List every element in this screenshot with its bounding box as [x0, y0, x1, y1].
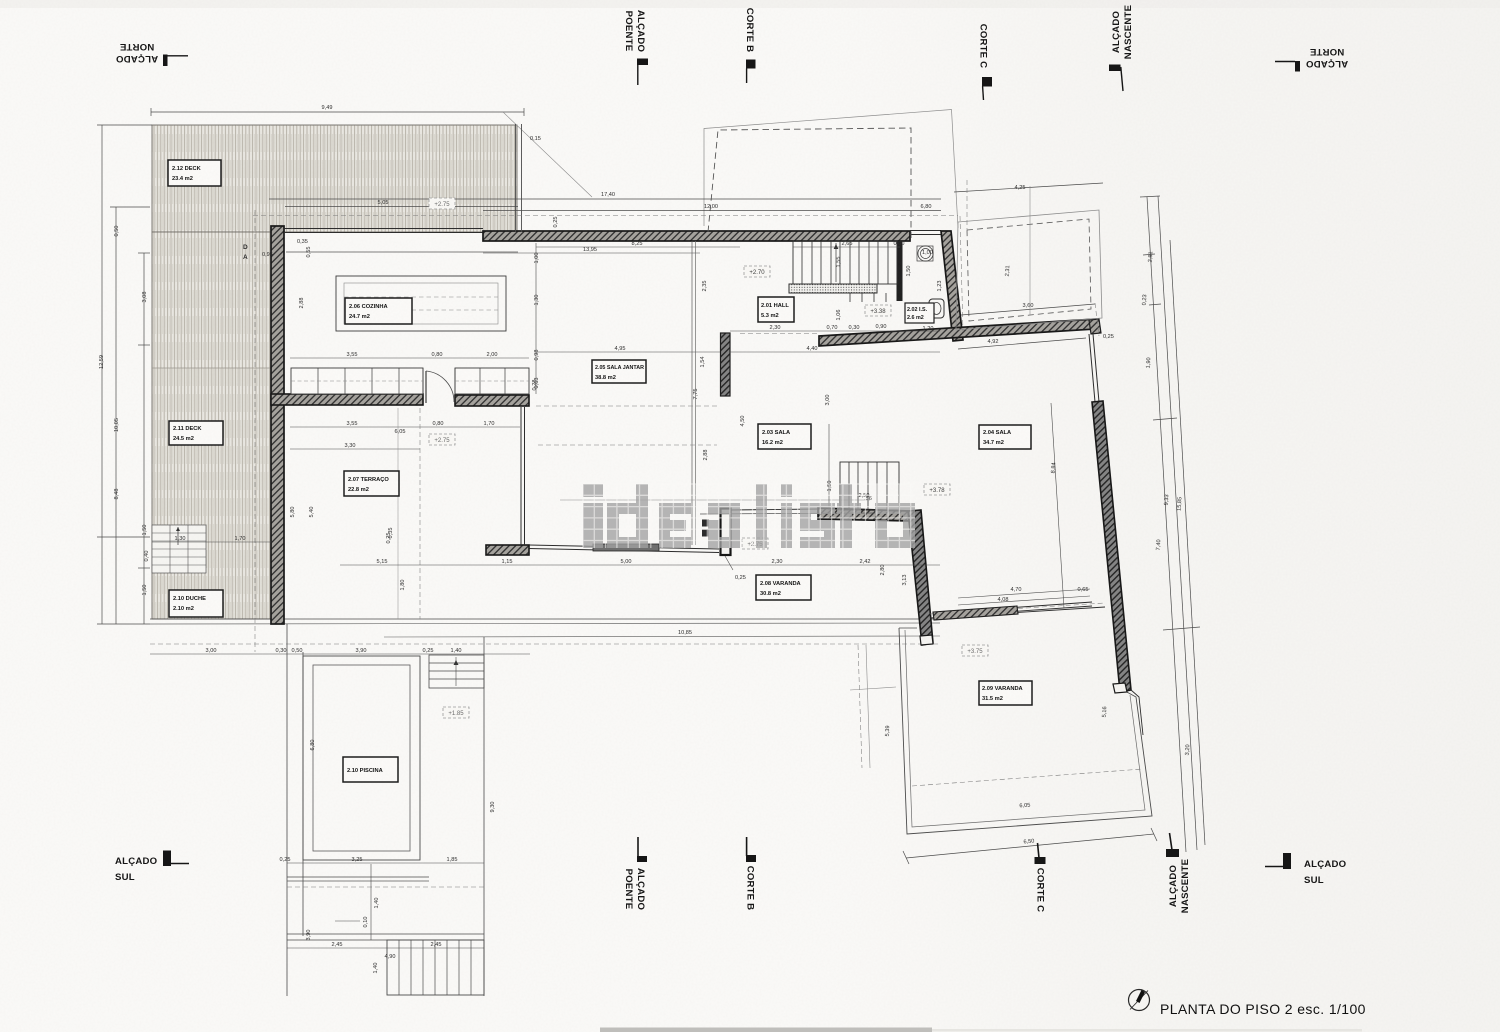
svg-text:ALÇADO: ALÇADO: [1304, 859, 1347, 870]
svg-text:NORTE: NORTE: [119, 41, 154, 52]
svg-text:CORTE C: CORTE C: [978, 24, 989, 69]
svg-text:ALÇADO: ALÇADO: [1111, 11, 1122, 54]
svg-text:NASCENTE: NASCENTE: [1180, 858, 1191, 913]
svg-text:ALÇADO: ALÇADO: [116, 53, 159, 64]
svg-text:ALÇADO: ALÇADO: [1306, 58, 1349, 69]
svg-text:ALÇADO: ALÇADO: [635, 868, 646, 911]
svg-text:NORTE: NORTE: [1309, 46, 1344, 57]
svg-text:SUL: SUL: [115, 872, 135, 883]
svg-text:POENTE: POENTE: [623, 11, 634, 52]
svg-text:SUL: SUL: [1304, 875, 1324, 886]
svg-text:POENTE: POENTE: [623, 869, 634, 910]
svg-text:CORTE C: CORTE C: [1035, 868, 1046, 913]
svg-text:ALÇADO: ALÇADO: [1168, 865, 1179, 908]
svg-text:ALÇADO: ALÇADO: [115, 856, 158, 867]
svg-text:ALÇADO: ALÇADO: [635, 10, 646, 53]
svg-text:CORTE B: CORTE B: [744, 8, 755, 53]
svg-text:CORTE B: CORTE B: [745, 866, 756, 911]
svg-text:NASCENTE: NASCENTE: [1123, 4, 1134, 59]
svg-text:PLANTA DO PISO 2 esc. 1/100: PLANTA DO PISO 2 esc. 1/100: [1160, 1001, 1366, 1017]
